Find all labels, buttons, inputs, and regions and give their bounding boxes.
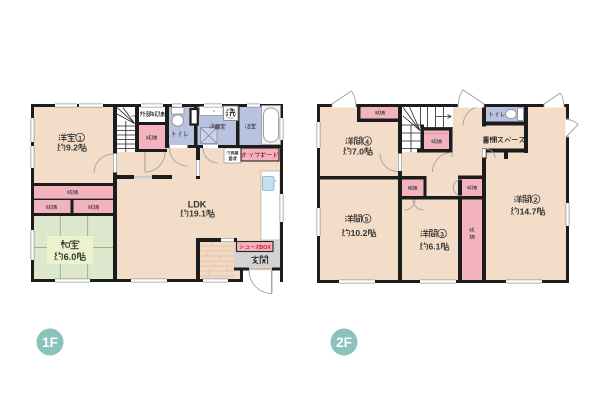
svg-text:7.0: 7.0 <box>352 146 364 156</box>
svg-text:5: 5 <box>365 217 369 224</box>
svg-text:6.0: 6.0 <box>64 252 77 262</box>
svg-text:3: 3 <box>440 231 444 238</box>
svg-text:19.1: 19.1 <box>189 209 206 219</box>
svg-text:BOX: BOX <box>259 245 271 251</box>
svg-text:9.2: 9.2 <box>66 143 78 153</box>
svg-text:14.7: 14.7 <box>520 206 537 216</box>
svg-text:6.1: 6.1 <box>429 242 441 252</box>
svg-text:2F: 2F <box>336 335 352 350</box>
svg-text:1F: 1F <box>42 335 58 350</box>
svg-text:1: 1 <box>78 135 82 142</box>
svg-text:4: 4 <box>365 139 369 146</box>
svg-text:2: 2 <box>534 197 538 204</box>
svg-text:10.2: 10.2 <box>351 228 368 238</box>
